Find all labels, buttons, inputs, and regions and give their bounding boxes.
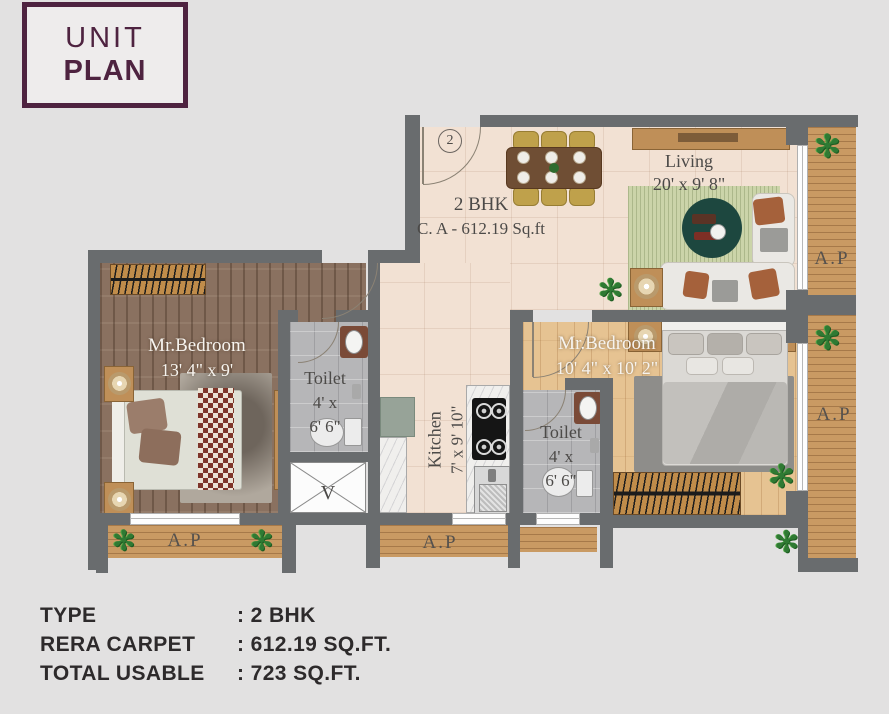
wall <box>506 513 536 525</box>
wall <box>100 513 130 525</box>
toilet2-name: Toilet <box>523 420 599 445</box>
logo-line1: UNIT <box>65 22 145 55</box>
living-lamp <box>634 274 659 299</box>
wall <box>405 115 420 263</box>
bedroom2-label: Mr.Bedroom 10' 4" x 10' 2" <box>532 332 682 380</box>
toilet1-dim1: 4' x <box>289 391 361 415</box>
summary-rera-label: RERA CARPET <box>40 633 195 657</box>
wall <box>510 310 523 513</box>
wall <box>290 310 298 322</box>
unit-plan-logo: UNIT PLAN <box>22 2 188 108</box>
wall <box>508 525 520 568</box>
balcony-bottom-center-deck2 <box>520 527 597 552</box>
toilet2-dim1: 4' x <box>523 445 599 469</box>
bedroom2-wardrobe <box>613 472 741 515</box>
bedroom2-blanket <box>663 382 787 464</box>
window-line <box>802 343 803 491</box>
bedroom2-pillow <box>686 357 718 375</box>
toilet2-label: Toilet 4' x 6' 6" <box>523 420 599 493</box>
bedroom1-window <box>130 513 240 525</box>
wall <box>592 310 798 322</box>
plate <box>517 151 530 164</box>
entrance-door-leaf <box>422 127 424 184</box>
plant-icon: ✻ <box>774 528 799 558</box>
bedroom2-pillow <box>746 333 782 355</box>
bedroom2-pillow <box>707 333 743 355</box>
entrance-number-badge: 2 <box>438 129 462 153</box>
balcony-label-bottom-center: A.P <box>400 532 480 554</box>
wall <box>613 515 798 528</box>
wall <box>88 250 322 263</box>
plant-icon: ✻ <box>814 322 841 354</box>
sofa-cushion <box>682 270 709 299</box>
tv-console-inset <box>678 133 738 142</box>
bedroom1-lamp <box>108 488 131 511</box>
sofa-cushion <box>753 196 786 225</box>
shaft-label: V <box>300 480 356 506</box>
kitchen-label: Kitchen 7' x 9' 10" <box>423 406 468 474</box>
sofa-side-table <box>760 228 788 252</box>
wall <box>786 491 798 528</box>
bedroom2-name: Mr.Bedroom <box>532 332 682 357</box>
window-line <box>802 145 803 290</box>
wall <box>480 115 798 127</box>
plant-icon: ✻ <box>112 527 135 555</box>
wall <box>798 491 808 558</box>
unit-plan-page: UNIT PLAN ✻ <box>0 0 889 714</box>
unit-area-label: 2 BHK C. A - 612.19 Sq.ft <box>401 193 561 240</box>
carpet-area-text: C. A - 612.19 Sq.ft <box>401 218 561 240</box>
balcony-label-right-top: A.P <box>808 248 856 270</box>
plant-icon: ✻ <box>598 276 623 306</box>
summary-type-label: TYPE <box>40 604 96 628</box>
balcony-label-right-bottom: A.P <box>810 404 858 426</box>
wall <box>240 513 378 525</box>
table-centerpiece <box>549 163 559 173</box>
summary-usable-value: : 723 SQ.FT. <box>237 662 361 686</box>
toilet1-name: Toilet <box>289 366 361 391</box>
bedroom1-label: Mr.Bedroom 13' 4" x 9' <box>122 334 272 382</box>
toilet2-dim2: 6' 6" <box>523 469 599 493</box>
kitchen-name: Kitchen <box>423 406 446 474</box>
unit-type-text: 2 BHK <box>401 193 561 218</box>
summary-type-value: : 2 BHK <box>237 604 316 628</box>
bedroom1-bed-runner <box>198 388 234 490</box>
wall <box>798 295 856 315</box>
plant-icon: ✻ <box>768 460 795 492</box>
wall <box>368 250 419 263</box>
logo-line2: PLAN <box>64 55 147 88</box>
plate <box>573 151 586 164</box>
wall <box>600 390 613 513</box>
toilet1-label: Toilet 4' x 6' 6" <box>289 366 361 439</box>
kitchen-window <box>452 513 506 525</box>
coffee-cup <box>710 224 726 240</box>
kitchen-label-wrap: Kitchen 7' x 9' 10" <box>381 375 511 505</box>
bedroom2-pillow <box>722 357 754 375</box>
plate <box>545 151 558 164</box>
summary-rera-value: : 612.19 SQ.FT. <box>237 633 391 657</box>
summary-usable-label: TOTAL USABLE <box>40 662 205 686</box>
living-name: Living <box>619 150 759 173</box>
coffee-tray <box>692 214 716 224</box>
dining-chair <box>569 186 595 206</box>
living-dim: 20' x 9' 8" <box>619 173 759 196</box>
bedroom1-pillow <box>138 428 181 466</box>
wall <box>798 558 858 572</box>
wall <box>786 127 808 145</box>
wall <box>786 322 808 343</box>
wall <box>368 263 380 513</box>
bedroom1-headboard <box>112 390 125 490</box>
window-line <box>452 518 506 519</box>
plant-icon: ✻ <box>250 527 273 555</box>
bedroom2-dim: 10' 4" x 10' 2" <box>532 357 682 380</box>
living-label: Living 20' x 9' 8" <box>619 150 759 197</box>
window-line <box>130 518 240 519</box>
toilet2-window <box>536 513 580 525</box>
wall <box>798 115 858 127</box>
bedroom1-dim: 13' 4" x 9' <box>122 359 272 382</box>
sofa-cushion <box>748 268 780 300</box>
wall <box>600 513 613 568</box>
balcony-label-bottom-left: A.P <box>150 530 220 552</box>
toilet1-dim2: 6' 6" <box>289 415 361 439</box>
wall <box>290 452 368 462</box>
kitchen-dim: 7' x 9' 10" <box>447 406 469 474</box>
plate <box>573 171 586 184</box>
bedroom1-wardrobe <box>110 264 206 295</box>
plate <box>517 171 530 184</box>
wall <box>378 513 452 525</box>
sofa-side-table <box>712 280 738 302</box>
window-line <box>536 518 580 519</box>
plate <box>545 171 558 184</box>
wall <box>510 310 533 322</box>
plant-icon: ✻ <box>814 130 841 162</box>
bedroom1-name: Mr.Bedroom <box>122 334 272 359</box>
toilet1-washbasin <box>340 326 368 358</box>
